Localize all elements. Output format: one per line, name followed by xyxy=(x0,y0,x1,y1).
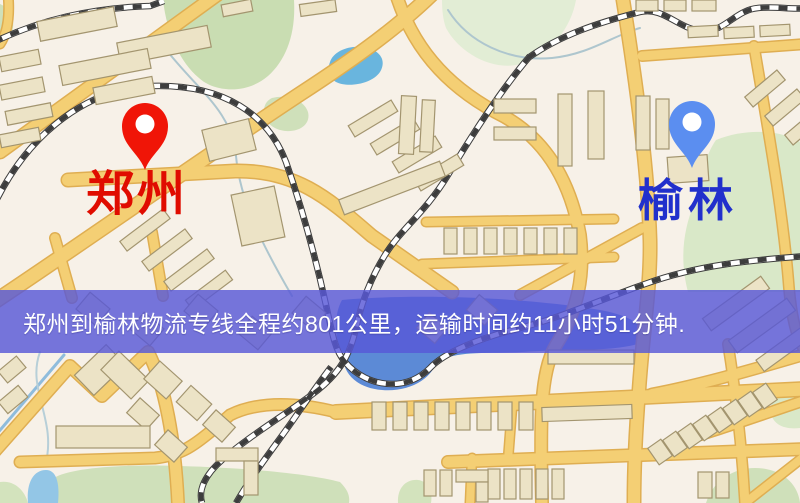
origin-pin-icon xyxy=(122,103,168,170)
map-canvas xyxy=(0,0,800,503)
destination-city-label: 榆林 xyxy=(638,178,738,223)
route-info-banner: 郑州到榆林物流专线全程约801公里，运输时间约11小时51分钟. xyxy=(0,290,800,353)
map-view: 郑州 榆林 郑州到榆林物流专线全程约801公里，运输时间约11小时51分钟. xyxy=(0,0,800,503)
origin-city-label: 郑州 xyxy=(86,170,188,218)
route-info-text: 郑州到榆林物流专线全程约801公里，运输时间约11小时51分钟. xyxy=(23,305,685,339)
